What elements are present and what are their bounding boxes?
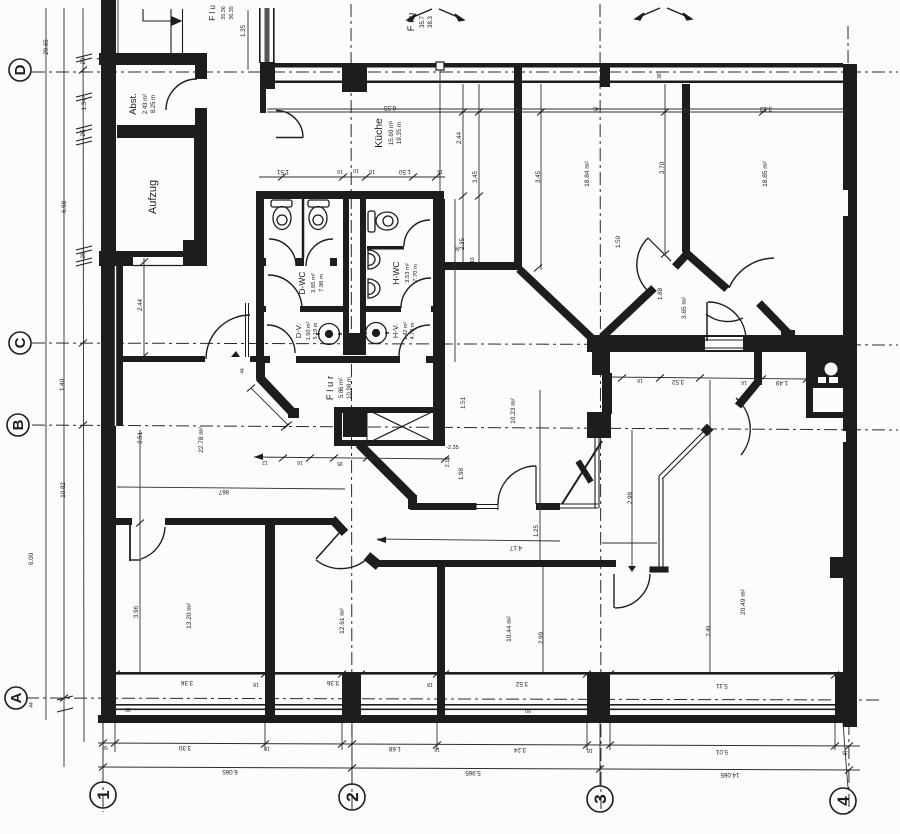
svg-text:Küche: Küche: [373, 118, 385, 148]
svg-text:16: 16: [369, 168, 375, 174]
svg-text:35: 35: [842, 749, 848, 755]
svg-text:29.65: 29.65: [43, 39, 50, 55]
svg-text:1: 1: [94, 790, 113, 799]
svg-text:2.44: 2.44: [137, 298, 144, 311]
svg-text:3.70: 3.70: [659, 161, 666, 174]
svg-text:2.49: 2.49: [706, 626, 712, 637]
svg-text:1.68: 1.68: [388, 745, 401, 752]
svg-text:3.45: 3.45: [472, 170, 479, 183]
svg-text:16: 16: [297, 459, 303, 465]
svg-text:D: D: [12, 64, 29, 75]
svg-text:13.20 m²: 13.20 m²: [186, 602, 193, 628]
svg-text:35.36: 35.36: [221, 6, 227, 20]
svg-text:5.11: 5.11: [716, 682, 728, 689]
svg-text:3.65 m²: 3.65 m²: [681, 296, 688, 319]
svg-text:16: 16: [741, 379, 747, 385]
svg-text:3.53 m²: 3.53 m²: [405, 263, 411, 283]
svg-text:1.50: 1.50: [398, 168, 411, 175]
svg-text:1.51: 1.51: [460, 396, 467, 409]
svg-text:F l u: F l u: [208, 5, 217, 21]
svg-text:10.23 m²: 10.23 m²: [510, 397, 517, 423]
svg-text:F l u r: F l u r: [325, 376, 336, 400]
svg-text:16: 16: [470, 257, 476, 263]
svg-text:3.36: 3.36: [326, 679, 339, 686]
svg-text:36.35: 36.35: [229, 6, 235, 20]
svg-text:6.065: 6.065: [222, 768, 238, 775]
svg-text:4: 4: [834, 796, 853, 806]
svg-text:3: 3: [591, 794, 610, 803]
svg-text:4.70 m: 4.70 m: [410, 322, 416, 339]
svg-text:C: C: [12, 337, 29, 348]
svg-text:A: A: [8, 692, 25, 703]
svg-text:1.98: 1.98: [458, 467, 465, 480]
svg-text:44: 44: [29, 702, 35, 708]
svg-text:36: 36: [455, 246, 461, 252]
svg-text:19.35 m: 19.35 m: [396, 122, 403, 144]
svg-text:16: 16: [437, 168, 443, 174]
svg-text:45: 45: [593, 105, 599, 111]
svg-text:1.34⁵: 1.34⁵: [81, 95, 88, 110]
svg-text:3.52: 3.52: [515, 680, 528, 687]
svg-text:18: 18: [253, 681, 259, 687]
svg-text:44: 44: [240, 368, 246, 374]
svg-text:7.98 m: 7.98 m: [319, 274, 325, 292]
svg-text:1.42 m²: 1.42 m²: [403, 322, 409, 341]
svg-text:H-V.: H-V.: [391, 324, 400, 338]
svg-text:2: 2: [343, 792, 362, 801]
svg-text:16: 16: [337, 168, 343, 174]
svg-text:5.86 m²: 5.86 m²: [339, 378, 345, 398]
svg-text:25: 25: [80, 251, 87, 258]
svg-text:3.52: 3.52: [671, 378, 684, 385]
svg-text:5.19 m: 5.19 m: [313, 322, 319, 339]
svg-text:20.49 m²: 20.49 m²: [740, 588, 747, 614]
svg-text:18: 18: [587, 747, 593, 753]
svg-text:7.70 m: 7.70 m: [413, 264, 419, 282]
svg-text:22.78 m²: 22.78 m²: [198, 426, 205, 452]
svg-text:1.50 m²: 1.50 m²: [306, 322, 312, 341]
svg-text:3.96: 3.96: [133, 605, 140, 618]
svg-text:1.50: 1.50: [615, 235, 622, 248]
svg-text:10: 10: [353, 167, 359, 173]
svg-text:35.7: 35.7: [420, 16, 426, 28]
svg-text:6.00: 6.00: [28, 552, 35, 565]
svg-text:H-WC: H-WC: [391, 261, 401, 284]
svg-text:3.51: 3.51: [137, 431, 144, 444]
svg-text:2.99: 2.99: [627, 491, 634, 504]
svg-text:2.44: 2.44: [456, 131, 463, 144]
svg-text:18.85 m²: 18.85 m²: [762, 160, 769, 186]
svg-text:95: 95: [337, 460, 343, 466]
svg-text:4.17: 4.17: [509, 544, 522, 551]
svg-text:18: 18: [427, 681, 433, 687]
svg-text:16: 16: [637, 377, 643, 383]
svg-text:B: B: [10, 419, 27, 430]
svg-text:Abst.: Abst.: [128, 93, 139, 115]
svg-text:3.30: 3.30: [178, 744, 191, 751]
svg-text:3.45: 3.45: [535, 170, 542, 183]
svg-text:2.99: 2.99: [538, 631, 545, 644]
svg-text:18: 18: [264, 745, 270, 751]
svg-text:12: 12: [262, 459, 268, 465]
svg-text:Aufzug: Aufzug: [147, 180, 159, 214]
svg-text:3.85 m²: 3.85 m²: [311, 273, 317, 293]
svg-text:38.3: 38.3: [428, 16, 434, 28]
svg-text:3.24: 3.24: [513, 746, 526, 753]
svg-text:15.60 m²: 15.60 m²: [388, 121, 395, 145]
svg-text:16: 16: [434, 746, 440, 752]
svg-text:50: 50: [102, 744, 108, 750]
svg-text:1.51: 1.51: [276, 168, 289, 175]
svg-text:1.88: 1.88: [657, 287, 664, 300]
svg-text:10.98 m: 10.98 m: [347, 377, 353, 399]
svg-text:3.13: 3.13: [759, 105, 772, 112]
svg-text:-2.35: -2.35: [446, 445, 459, 451]
svg-text:14.065: 14.065: [720, 771, 739, 778]
svg-text:5.01: 5.01: [715, 748, 728, 755]
svg-text:F l u: F l u: [406, 13, 417, 31]
svg-text:867: 867: [218, 488, 229, 495]
svg-text:2.43 m²: 2.43 m²: [143, 94, 149, 114]
svg-text:10.82: 10.82: [60, 482, 67, 498]
svg-text:12.61 m²: 12.61 m²: [339, 607, 346, 633]
svg-text:1.40: 1.40: [59, 378, 66, 391]
svg-text:1.35: 1.35: [240, 24, 247, 37]
svg-text:29: 29: [80, 57, 87, 64]
svg-text:25: 25: [80, 129, 87, 136]
svg-text:6.98: 6.98: [61, 200, 68, 213]
svg-text:5.965: 5.965: [465, 769, 481, 776]
svg-text:3.36: 3.36: [180, 679, 193, 686]
svg-text:10.44 m²: 10.44 m²: [506, 615, 513, 641]
svg-text:D-V.: D-V.: [294, 324, 303, 338]
svg-text:18.84 m²: 18.84 m²: [584, 160, 591, 186]
svg-text:D-WC: D-WC: [297, 271, 307, 294]
svg-text:50: 50: [525, 707, 531, 713]
svg-text:8.25 m: 8.25 m: [151, 95, 157, 113]
svg-text:6.55: 6.55: [383, 104, 396, 111]
svg-text:2.10: 2.10: [445, 457, 451, 468]
svg-text:1.49: 1.49: [775, 379, 788, 386]
svg-text:36: 36: [657, 73, 663, 79]
svg-text:30: 30: [125, 706, 131, 712]
svg-text:1.25: 1.25: [533, 524, 540, 537]
